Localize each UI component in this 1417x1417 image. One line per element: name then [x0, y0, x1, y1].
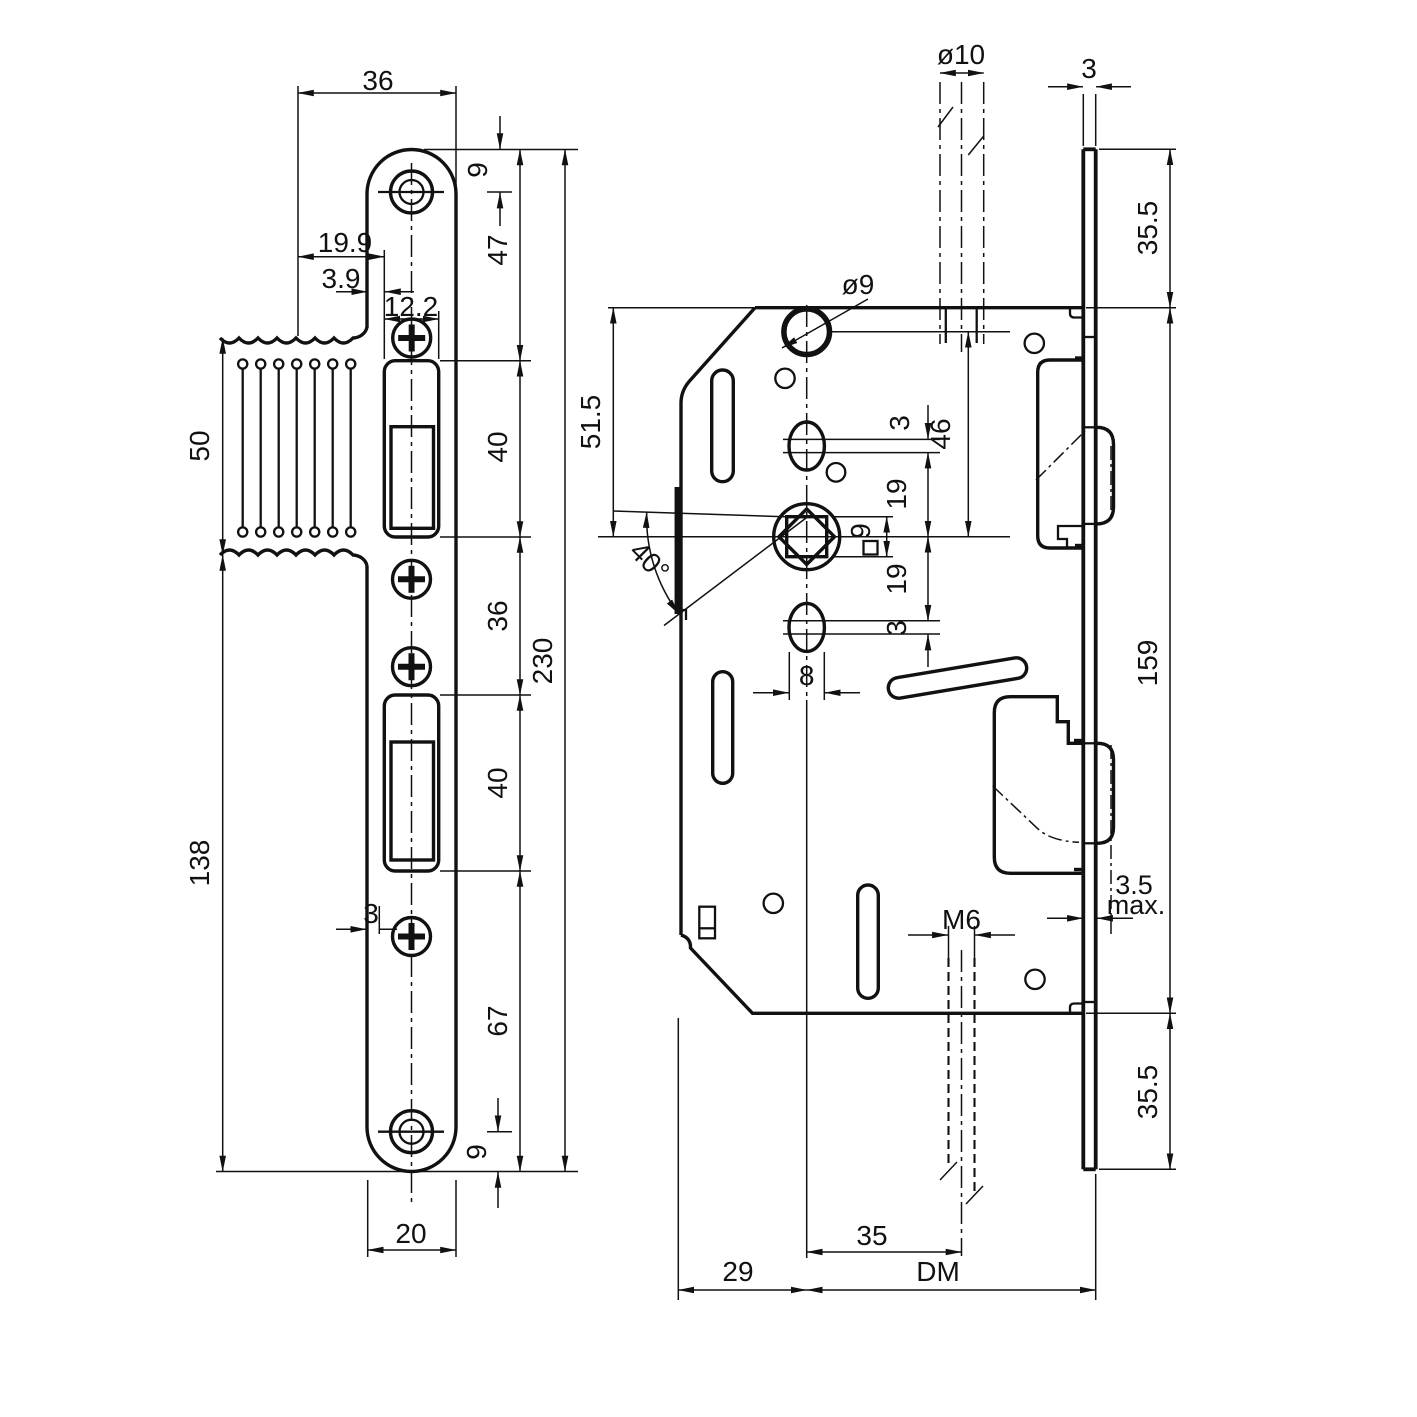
dim-top-to-follower: 51.5 [575, 395, 606, 450]
dim-screw-bottom-offset: 9 [461, 1144, 492, 1160]
dim-faceplate-bottom-overhang: 35.5 [1132, 1065, 1163, 1120]
dim-faceplate-top-overhang: 35.5 [1132, 201, 1163, 256]
dim-plate-length: 230 [527, 638, 558, 685]
dim-screw-top-offset: 9 [462, 162, 493, 178]
dim-slot-play-top: 3 [884, 415, 915, 431]
dim-screw-thread: M6 [942, 904, 981, 935]
technical-drawing-page: 36 19.9 3.9 12.2 9 47 40 36 40 67 9 230 … [0, 0, 1417, 1417]
dim-offset-b: 3.9 [322, 263, 361, 294]
spindle-hole-column [938, 82, 984, 352]
dim-backset: DM [916, 1256, 960, 1287]
dim-latch-cutout-height: 40 [482, 431, 513, 462]
dim-spindle-hole-dia: ø10 [937, 39, 985, 70]
dim-bolt-to-bottom: 67 [482, 1005, 513, 1036]
case-left-edge [681, 308, 755, 935]
strike-plate-view: 36 19.9 3.9 12.2 9 47 40 36 40 67 9 230 … [184, 65, 578, 1257]
dim-lip-height: 50 [184, 430, 215, 461]
dim-follower-square: 9 [845, 523, 876, 539]
dim-top-to-latch: 47 [482, 234, 513, 265]
small-rect-hole [699, 907, 715, 939]
m6-screw-column [940, 926, 983, 1256]
latch-bolt [1036, 358, 1114, 548]
case-bottom-edge [681, 935, 1083, 1013]
dim-plate-width: 20 [395, 1218, 426, 1249]
dim-between-cutouts: 36 [482, 600, 513, 631]
dim-bolt-protrusion-suffix: max. [1107, 890, 1166, 920]
lip-serrated-bottom-edge [220, 550, 367, 566]
lock-case-view: ø10 3 35.5 ø9 51.5 40° 46 3 19 9 19 3 8 … [575, 39, 1176, 1300]
lip-serrated-top-edge [220, 327, 367, 343]
dim-flange-width: 36 [362, 65, 393, 96]
dim-offset-a: 19.9 [318, 227, 373, 258]
lock-technical-drawing: 36 19.9 3.9 12.2 9 47 40 36 40 67 9 230 … [0, 0, 1417, 1417]
dim-edge-to-spindle: 29 [722, 1256, 753, 1287]
dim-hole-to-follower: 46 [925, 418, 956, 449]
dim-bolt-cutout-height: 40 [482, 767, 513, 798]
dim-cutout-width: 12.2 [384, 291, 439, 322]
dim-slot-width: 8 [799, 660, 815, 691]
dim-spindle-to-screw: 35 [856, 1220, 887, 1251]
left-view-extension-lines [216, 86, 578, 1257]
dim-pitch-top: 19 [881, 478, 912, 509]
dim-screw-edge-offset: 3 [363, 898, 379, 929]
lip-spring-lines [238, 359, 355, 536]
faceplate [1070, 149, 1096, 1169]
dim-slot-play-bottom: 3 [881, 620, 912, 636]
dim-faceplate-thickness: 3 [1081, 53, 1097, 84]
dim-lower-length: 138 [184, 840, 215, 887]
latch-cutout-inner [391, 427, 434, 529]
dim-hole-dia: ø9 [842, 269, 875, 300]
dim-pitch-bottom: 19 [881, 563, 912, 594]
dim-case-height: 159 [1132, 640, 1163, 687]
dim-lever-angle: 40° [624, 535, 676, 587]
square-symbol [864, 541, 878, 555]
